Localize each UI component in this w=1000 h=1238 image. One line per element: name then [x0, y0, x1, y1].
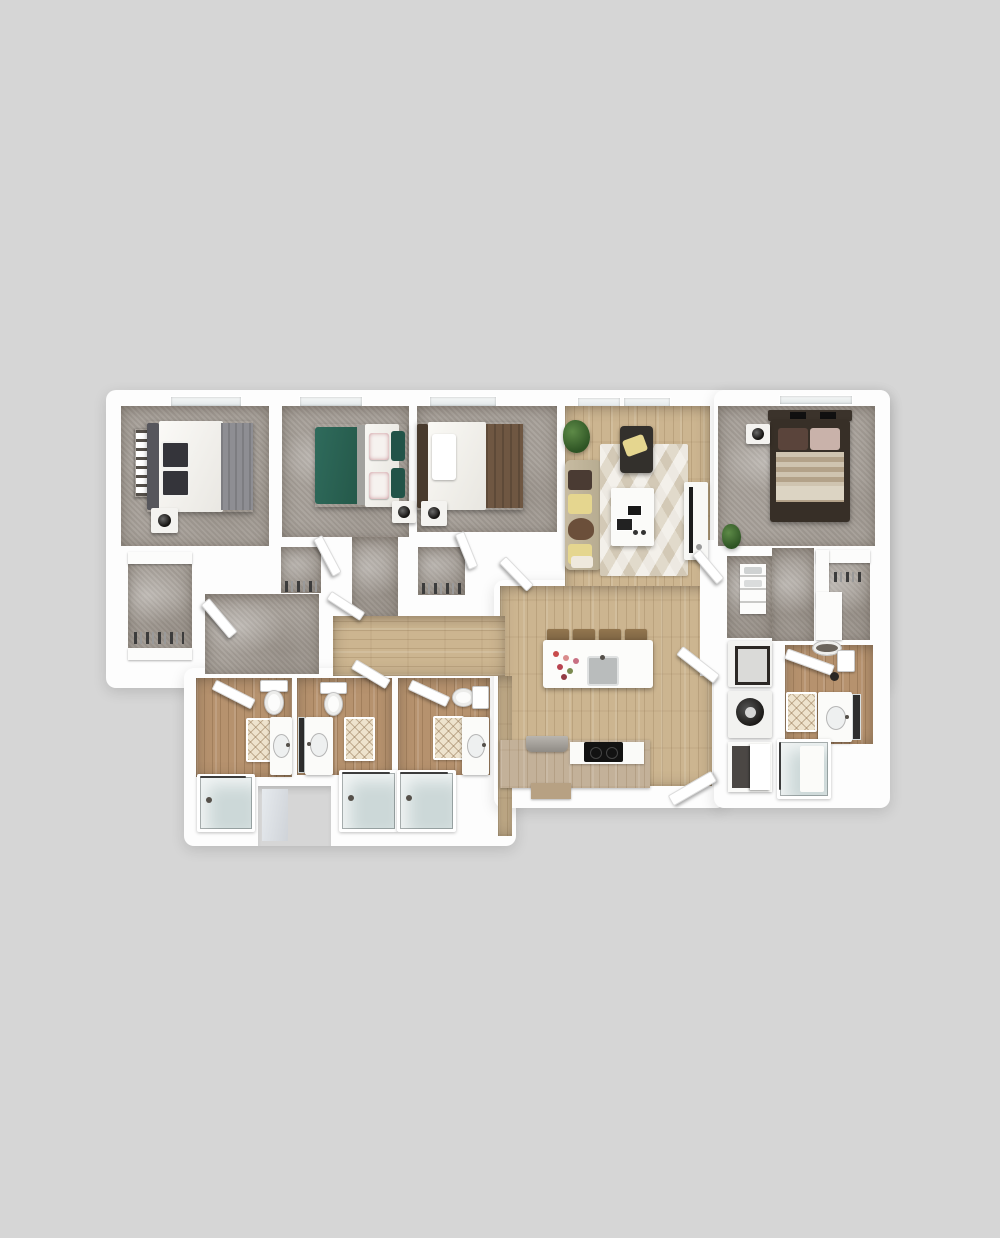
island-sink — [587, 656, 619, 686]
bathroom-4-bin — [830, 672, 839, 681]
nightstand-1 — [151, 508, 178, 533]
sink-2 — [310, 733, 328, 757]
closet-4-shelf-return — [816, 592, 842, 640]
sofa — [565, 460, 602, 570]
bed-1-pillow-a — [161, 441, 190, 469]
towels-a — [744, 567, 762, 574]
mirror-4 — [852, 694, 861, 740]
faucet-4 — [845, 715, 849, 719]
sofa-pillow-brown — [568, 518, 594, 540]
bedroom-4-plant — [722, 524, 741, 549]
nightstand-2 — [392, 501, 416, 523]
vanity-4 — [818, 692, 852, 742]
bed-2-floral-pillow-a — [369, 433, 389, 460]
toilet-2-bowl — [324, 692, 343, 716]
bed-4-pillow-blush — [810, 428, 840, 450]
sofa-pillow-yellow-a — [568, 494, 592, 514]
living-plant — [563, 420, 590, 453]
dryer — [728, 691, 772, 738]
dryer-door-glass — [745, 707, 756, 718]
bed-1-pillow-b — [161, 469, 190, 497]
bathtub-2-rim — [342, 772, 390, 774]
bathtub-1 — [197, 774, 255, 832]
exterior-notch-shadow — [262, 789, 288, 841]
tv-screen — [689, 487, 693, 553]
bed-2-floral-pillow-b — [369, 472, 389, 499]
washer-door — [735, 646, 770, 685]
bed-2-pillow-b — [391, 468, 405, 498]
bath-mat-3 — [433, 716, 464, 760]
bed-4-pillow-brown — [778, 428, 808, 450]
bed-1-throw-blanket — [221, 423, 253, 510]
shelf-books-a — [790, 412, 806, 419]
lamp-4 — [752, 428, 764, 440]
utility-closet-door — [750, 744, 770, 790]
shower-frame — [779, 742, 781, 790]
bed-1-headboard — [147, 423, 159, 510]
accent-chair-pillow — [622, 434, 648, 457]
toilet-3-tank — [472, 686, 489, 709]
closet-4-items — [834, 572, 862, 582]
bathtub-2 — [339, 770, 398, 832]
vanity-3 — [462, 717, 489, 775]
lamp-3 — [428, 507, 440, 519]
tv-console — [684, 482, 708, 560]
bathtub-1-faucet — [206, 797, 212, 803]
coffee-table-item-a — [627, 505, 642, 516]
closet-1-shelf-top — [128, 552, 192, 564]
coffee-table-item-d — [641, 530, 646, 535]
nightstand-3 — [421, 501, 447, 526]
bathtub-3 — [397, 770, 456, 832]
sofa-pillow-white — [571, 556, 593, 568]
lamp-1 — [158, 514, 171, 527]
bed-2 — [315, 424, 407, 507]
cooktop — [584, 742, 623, 762]
countertop-appliance — [526, 736, 568, 752]
faucet-3 — [482, 743, 486, 747]
towels-b — [744, 580, 762, 587]
bathtub-1-rim — [200, 776, 246, 778]
accent-chair — [620, 426, 653, 473]
hallway-floor — [205, 594, 319, 674]
bath-mat-4 — [786, 692, 817, 732]
vanity-1 — [270, 717, 292, 775]
shower-pan — [800, 746, 824, 792]
burner-1 — [590, 747, 602, 759]
window-bedroom-4 — [779, 395, 853, 405]
bath-mat-2 — [344, 717, 375, 761]
hallway-nook-floor — [352, 537, 398, 617]
bed-4 — [770, 420, 850, 522]
floor-plan — [0, 0, 1000, 1238]
nightstand-4 — [746, 424, 770, 444]
bathtub-3-faucet — [406, 795, 412, 801]
washer — [728, 641, 772, 687]
bed-3-pillows — [432, 434, 456, 480]
bed-3 — [417, 422, 523, 510]
coffee-table-item-b — [616, 518, 633, 531]
coffee-table — [611, 488, 654, 546]
bed-3-throw-blanket — [486, 424, 523, 508]
glass-shower — [777, 739, 831, 799]
faucet-2 — [307, 742, 311, 746]
shelf-books-b — [820, 412, 836, 419]
closet-1-hanging-clothes — [134, 632, 184, 644]
toilet-1-bowl — [264, 690, 284, 715]
dressing-hall-floor — [772, 548, 814, 641]
closet-3-hanging-clothes — [422, 583, 462, 594]
island-flowers — [553, 651, 559, 657]
sofa-pillow-dark — [568, 470, 592, 490]
sink-4 — [826, 706, 846, 730]
bathtub-3-rim — [400, 772, 448, 774]
linen-shelving-unit — [740, 564, 766, 614]
toilet-4-tank — [837, 650, 855, 672]
bed-4-cream-band — [776, 486, 844, 500]
island-faucet — [600, 655, 605, 660]
faucet-1 — [286, 743, 290, 747]
lamp-2 — [398, 506, 410, 518]
cabinet-peninsula — [531, 783, 571, 799]
kitchen-island — [543, 640, 653, 688]
bed-2-pillow-a — [391, 431, 405, 461]
bathtub-2-faucet — [348, 795, 354, 801]
closet-1-shelf-bottom — [128, 648, 192, 660]
mirror-2 — [298, 717, 305, 773]
coffee-table-item-c — [633, 530, 638, 535]
vanity-2 — [305, 717, 333, 775]
bed-3-headboard — [417, 424, 428, 508]
utility-closet — [728, 742, 772, 792]
closet-2-hanging-clothes — [285, 581, 317, 592]
burner-2 — [606, 747, 618, 759]
bed-1 — [147, 421, 253, 512]
